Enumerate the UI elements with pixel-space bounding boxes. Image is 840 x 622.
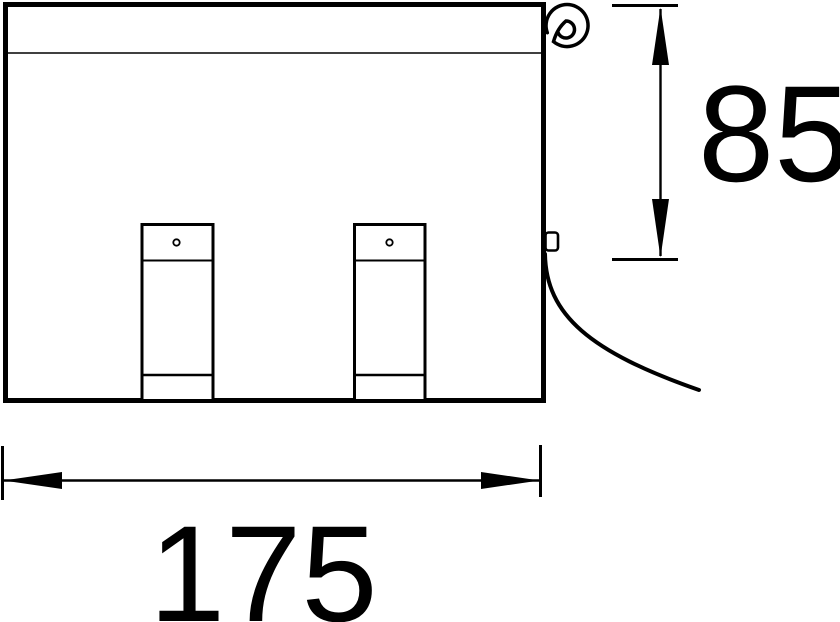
foot-screw-hole-right (386, 239, 392, 245)
height-dimension-label: 85 (698, 58, 840, 211)
technical-drawing-page: 85 175 (0, 0, 840, 622)
power-cable (545, 254, 699, 390)
arrow-down-icon (652, 199, 669, 258)
width-dimension-label: 175 (149, 498, 378, 622)
cable-coil-loop (546, 5, 588, 47)
arrow-up-icon (652, 8, 669, 66)
fixture-body (6, 5, 544, 401)
arrow-right-icon (481, 472, 540, 489)
foot-screw-hole-left (173, 239, 179, 245)
mounting-foot-right (355, 225, 426, 401)
arrow-left-icon (4, 472, 63, 489)
cable-entry-tab (546, 233, 559, 251)
width-dimension: 175 (3, 445, 541, 622)
fixture-body-outline (6, 5, 544, 401)
technical-drawing-canvas: 85 175 (0, 0, 840, 622)
mounting-foot-left (142, 225, 213, 401)
height-dimension: 85 (612, 6, 840, 260)
